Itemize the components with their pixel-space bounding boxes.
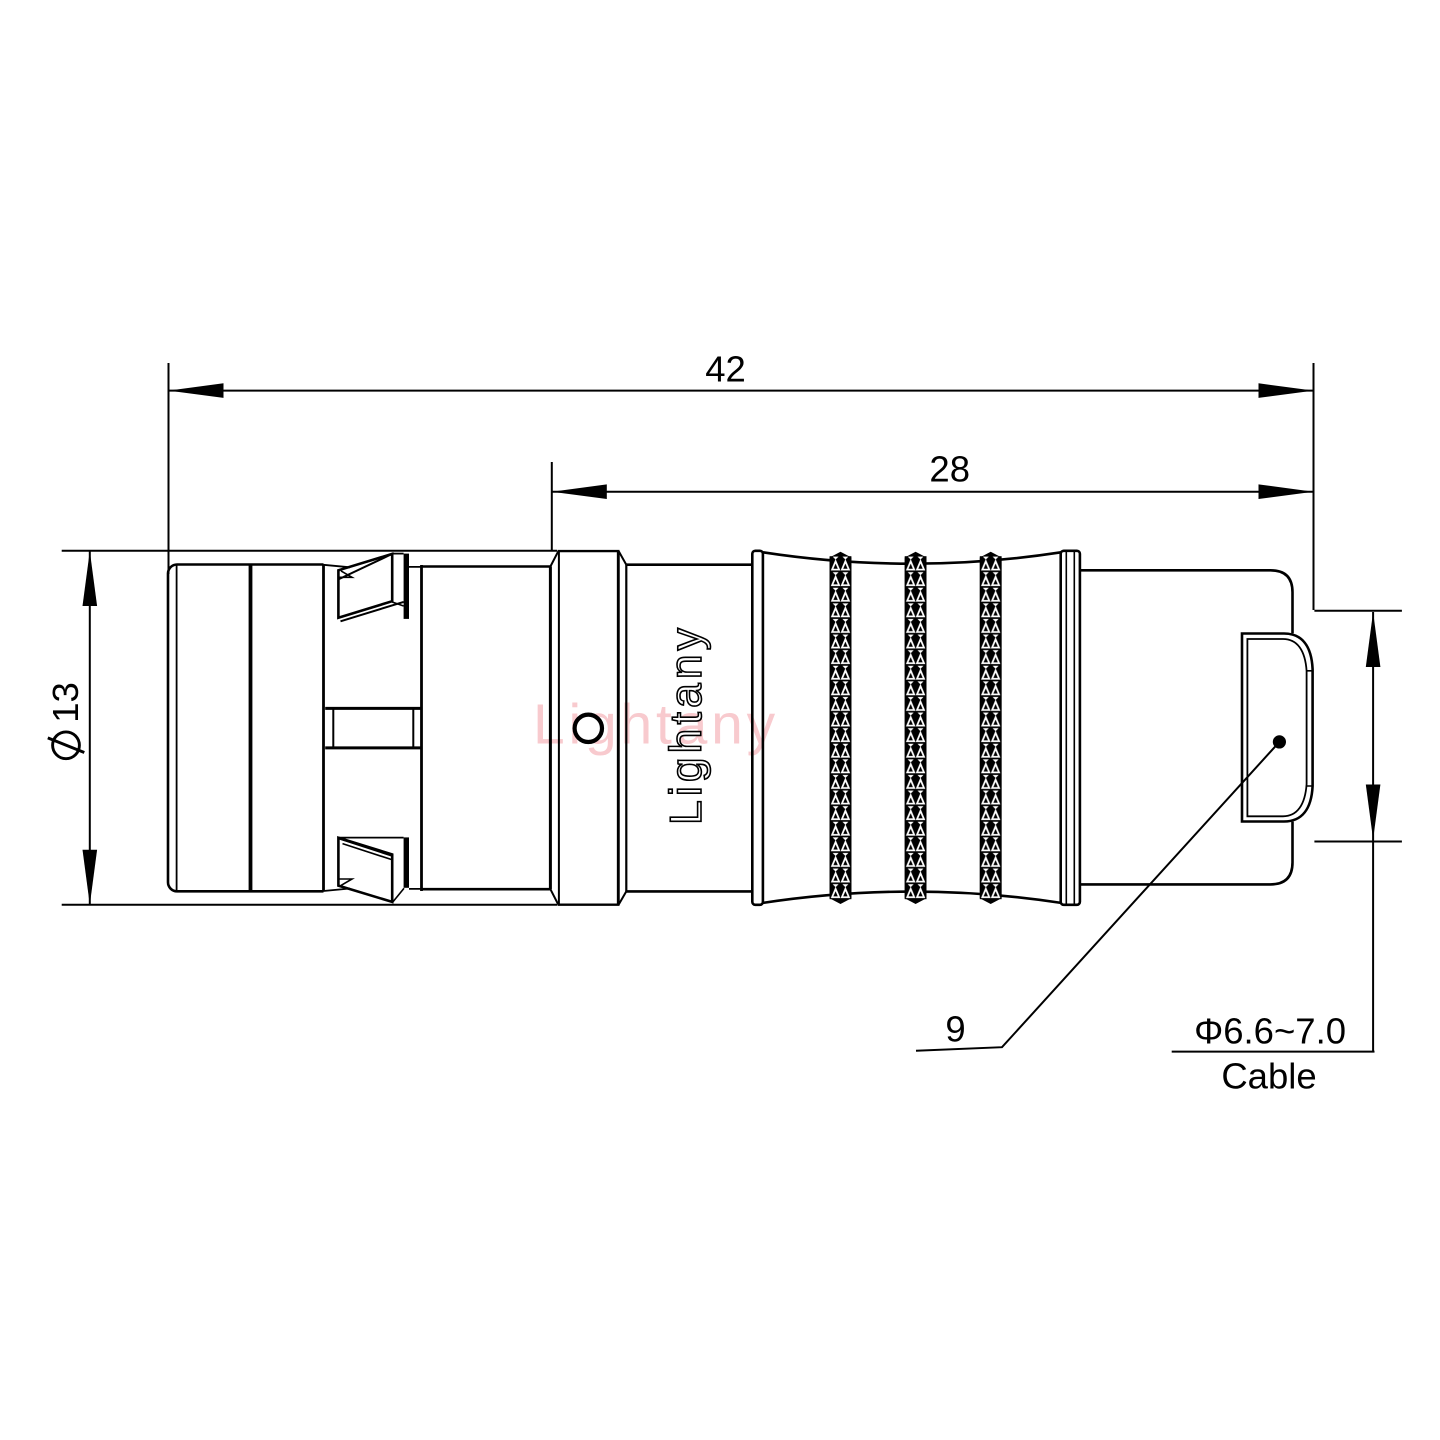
svg-text:28: 28 xyxy=(929,448,970,489)
svg-text:9: 9 xyxy=(945,1008,965,1049)
svg-text:13: 13 xyxy=(45,682,86,723)
svg-text:Lightany: Lightany xyxy=(662,624,711,825)
svg-text:Φ6.6~7.0: Φ6.6~7.0 xyxy=(1194,1010,1346,1051)
svg-text:Cable: Cable xyxy=(1221,1056,1316,1097)
svg-text:Lightany: Lightany xyxy=(533,693,779,757)
svg-text:42: 42 xyxy=(705,349,746,390)
